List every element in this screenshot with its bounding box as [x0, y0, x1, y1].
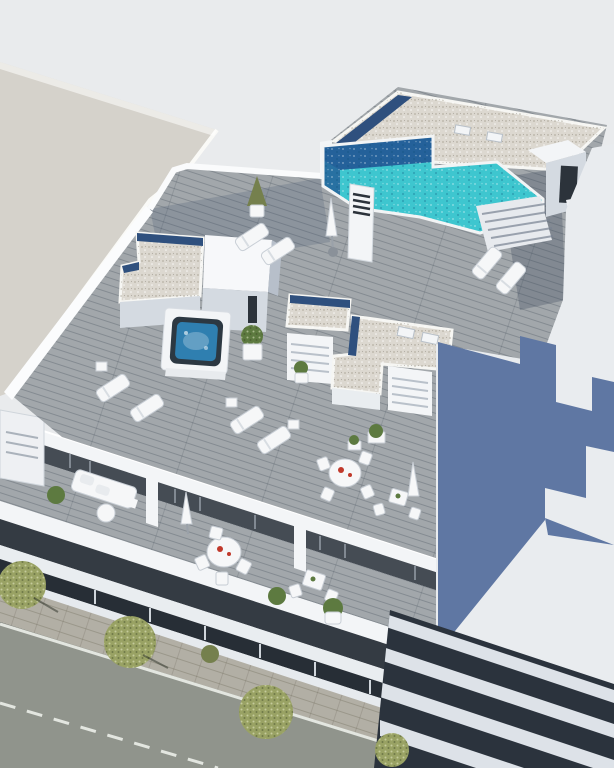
facade-bush [201, 645, 219, 663]
balcony-partition [146, 472, 158, 527]
plant-pot [47, 486, 65, 504]
side-table [96, 362, 107, 371]
side-table [288, 420, 299, 429]
plant-pot [268, 587, 286, 605]
side-table [226, 398, 237, 407]
render-viewport [0, 0, 614, 768]
plant-pot-white [323, 598, 343, 624]
louver-closet [388, 366, 432, 416]
ventilation-chimney [348, 184, 374, 262]
balcony-partition [294, 520, 306, 572]
bush-texture [375, 733, 409, 767]
street-tree [239, 685, 293, 739]
ac-utility-box [0, 410, 44, 486]
roof-plant [241, 325, 263, 360]
door [248, 296, 257, 323]
aerial-render [0, 0, 614, 768]
hot-tub [161, 308, 231, 380]
roof-plant [294, 361, 308, 383]
